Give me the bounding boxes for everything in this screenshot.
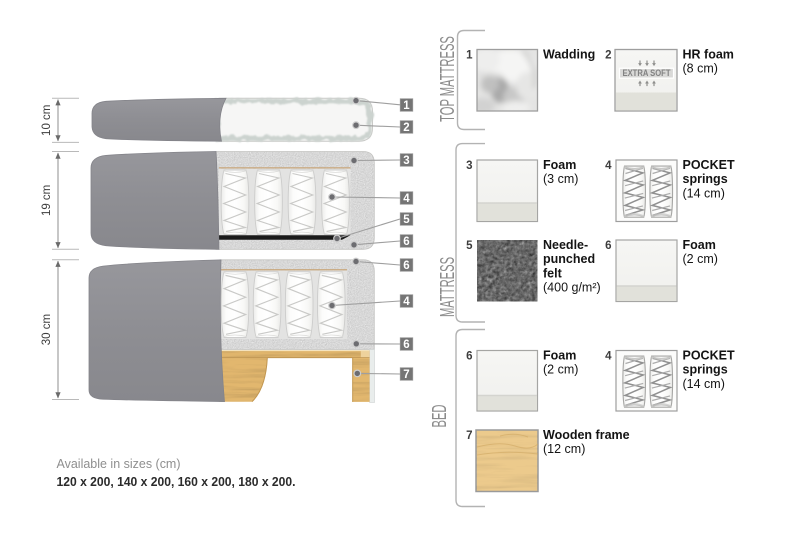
svg-text:6: 6 [403, 260, 409, 272]
svg-text:felt: felt [543, 266, 563, 280]
svg-text:(400 g/m²): (400 g/m²) [543, 281, 601, 295]
svg-text:7: 7 [466, 430, 472, 442]
svg-text:Wadding: Wadding [543, 48, 595, 62]
svg-text:(14 cm): (14 cm) [683, 186, 725, 200]
svg-text:1: 1 [403, 100, 410, 112]
svg-text:(14 cm): (14 cm) [683, 377, 725, 391]
svg-text:6: 6 [605, 240, 611, 252]
svg-text:(12 cm): (12 cm) [543, 442, 585, 456]
svg-text:4: 4 [403, 296, 410, 308]
svg-text:POCKET: POCKET [683, 349, 735, 363]
svg-text:2: 2 [403, 122, 409, 134]
svg-text:2: 2 [605, 50, 611, 62]
svg-text:Foam: Foam [683, 238, 716, 252]
svg-text:120 x 200, 140 x 200, 160 x 20: 120 x 200, 140 x 200, 160 x 200, 180 x 2… [57, 474, 296, 489]
svg-text:HR foam: HR foam [683, 48, 734, 62]
svg-text:POCKET: POCKET [683, 158, 735, 172]
svg-text:Foam: Foam [543, 349, 576, 363]
svg-text:7: 7 [403, 369, 409, 381]
svg-text:(2 cm): (2 cm) [543, 363, 578, 377]
svg-text:5: 5 [403, 214, 410, 226]
svg-text:30 cm: 30 cm [41, 314, 53, 345]
svg-text:Foam: Foam [543, 158, 576, 172]
svg-text:(8 cm): (8 cm) [683, 62, 718, 76]
svg-text:6: 6 [403, 236, 409, 248]
svg-text:springs: springs [683, 172, 728, 186]
svg-text:3: 3 [403, 155, 409, 167]
svg-text:BED: BED [429, 404, 451, 427]
svg-text:Wooden frame: Wooden frame [543, 428, 630, 442]
svg-text:(3 cm): (3 cm) [543, 172, 578, 186]
svg-text:(2 cm): (2 cm) [683, 252, 718, 266]
svg-text:10 cm: 10 cm [41, 105, 53, 136]
svg-text:TOP MATTRESS: TOP MATTRESS [437, 36, 459, 122]
svg-text:Needle-: Needle- [543, 238, 588, 252]
svg-text:6: 6 [466, 351, 472, 363]
svg-text:4: 4 [403, 193, 410, 205]
svg-text:4: 4 [605, 160, 612, 172]
svg-text:3: 3 [466, 160, 472, 172]
svg-text:Available in sizes (cm): Available in sizes (cm) [57, 456, 181, 471]
svg-text:springs: springs [683, 363, 728, 377]
svg-text:4: 4 [605, 351, 612, 363]
svg-text:EXTRA SOFT: EXTRA SOFT [623, 68, 672, 78]
svg-text:19 cm: 19 cm [41, 185, 53, 216]
svg-text:MATTRESS: MATTRESS [437, 257, 459, 317]
svg-text:1: 1 [466, 50, 473, 62]
svg-text:5: 5 [466, 240, 473, 252]
svg-text:6: 6 [403, 339, 409, 351]
svg-text:punched: punched [543, 252, 595, 266]
